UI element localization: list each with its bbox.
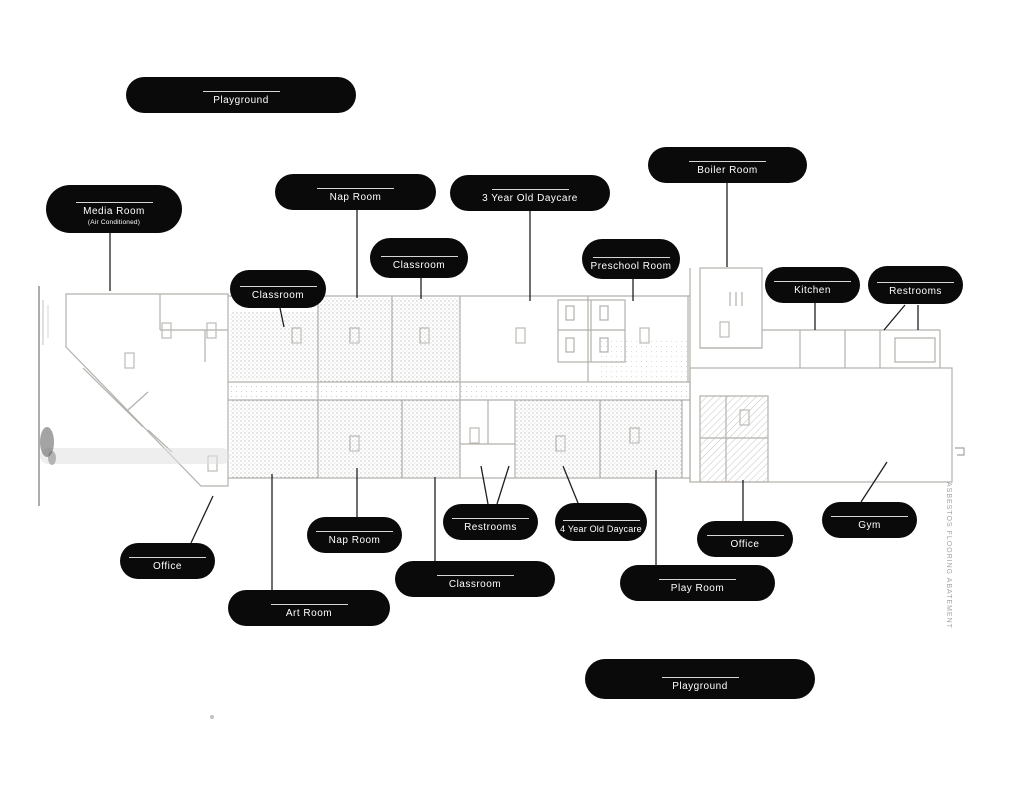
- scan-artifacts: [39, 286, 230, 719]
- pill-label: Art Room: [286, 608, 332, 621]
- pill-label: Classroom: [449, 579, 501, 592]
- label-pill-classroom-bottom: Classroom: [395, 561, 555, 597]
- pill-divider: [129, 557, 206, 558]
- pill-divider: [203, 91, 280, 92]
- pill-label: 4 Year Old Daycare: [560, 524, 642, 535]
- pill-divider: [774, 281, 851, 282]
- plan-side-note: ASBESTOS FLOORING ABATEMENT: [945, 482, 952, 629]
- pill-divider: [831, 516, 908, 517]
- leader-restrooms-top-a: [884, 305, 905, 330]
- label-pill-restrooms-top: Restrooms: [868, 266, 963, 304]
- label-pill-office-right: Office: [697, 521, 793, 557]
- label-pill-nap-room-bottom: Nap Room: [307, 517, 402, 553]
- pill-sublabel: (Air Conditioned): [88, 219, 140, 227]
- pill-divider: [76, 202, 153, 203]
- label-pill-play-room: Play Room: [620, 565, 775, 601]
- pill-label: Restrooms: [464, 522, 517, 535]
- pill-label: 3 Year Old Daycare: [482, 193, 578, 206]
- label-pill-kitchen: Kitchen: [765, 267, 860, 303]
- pill-divider: [593, 257, 670, 258]
- pill-label: Gym: [858, 520, 881, 533]
- pill-divider: [240, 286, 317, 287]
- pill-label: Boiler Room: [697, 165, 758, 178]
- pill-divider: [563, 520, 640, 521]
- pill-divider: [271, 604, 348, 605]
- pill-divider: [452, 518, 529, 519]
- pill-label: Office: [153, 561, 182, 574]
- pill-label: Classroom: [252, 290, 304, 303]
- floor-plan: ASBESTOS FLOORING ABATEMENT: [0, 0, 1024, 791]
- label-pill-classroom-top-mid: Classroom: [370, 238, 468, 278]
- leader-restrooms-bottom-a: [481, 466, 488, 504]
- pill-divider: [316, 531, 393, 532]
- pill-divider: [877, 282, 954, 283]
- label-pill-restrooms-bottom: Restrooms: [443, 504, 538, 540]
- pill-label: Nap Room: [329, 535, 381, 548]
- leader-restrooms-bottom-b: [497, 466, 509, 504]
- pill-divider: [381, 256, 458, 257]
- pill-label: Play Room: [671, 583, 724, 596]
- label-pill-gym: Gym: [822, 502, 917, 538]
- label-pill-3-year-old-daycare: 3 Year Old Daycare: [450, 175, 610, 211]
- pill-divider: [689, 161, 766, 162]
- label-pill-preschool-room: Preschool Room: [582, 239, 680, 279]
- label-pill-4-year-old-daycare: 4 Year Old Daycare: [555, 503, 647, 541]
- pill-label: Nap Room: [330, 192, 382, 205]
- pill-label: Media Room: [83, 206, 145, 219]
- pill-label: Kitchen: [794, 285, 831, 298]
- pill-label: Classroom: [393, 260, 445, 273]
- label-pill-office-left: Office: [120, 543, 215, 579]
- label-pill-nap-room-top: Nap Room: [275, 174, 436, 210]
- leader-office-left: [191, 496, 213, 543]
- label-pill-playground-top: Playground: [126, 77, 356, 113]
- label-pill-media-room: Media Room (Air Conditioned): [46, 185, 182, 233]
- pill-divider: [437, 575, 514, 576]
- label-pill-art-room: Art Room: [228, 590, 390, 626]
- pill-label: Office: [731, 539, 760, 552]
- label-pill-boiler-room: Boiler Room: [648, 147, 807, 183]
- label-pill-classroom-top-left: Classroom: [230, 270, 326, 308]
- pill-label: Restrooms: [889, 286, 942, 299]
- pill-label: Playground: [672, 681, 728, 694]
- pill-divider: [492, 189, 569, 190]
- label-pill-playground-bottom: Playground: [585, 659, 815, 699]
- pill-label: Preschool Room: [591, 261, 672, 274]
- pill-divider: [317, 188, 394, 189]
- pill-divider: [659, 579, 736, 580]
- pill-divider: [662, 677, 739, 678]
- pill-divider: [707, 535, 784, 536]
- pill-label: Playground: [213, 95, 269, 108]
